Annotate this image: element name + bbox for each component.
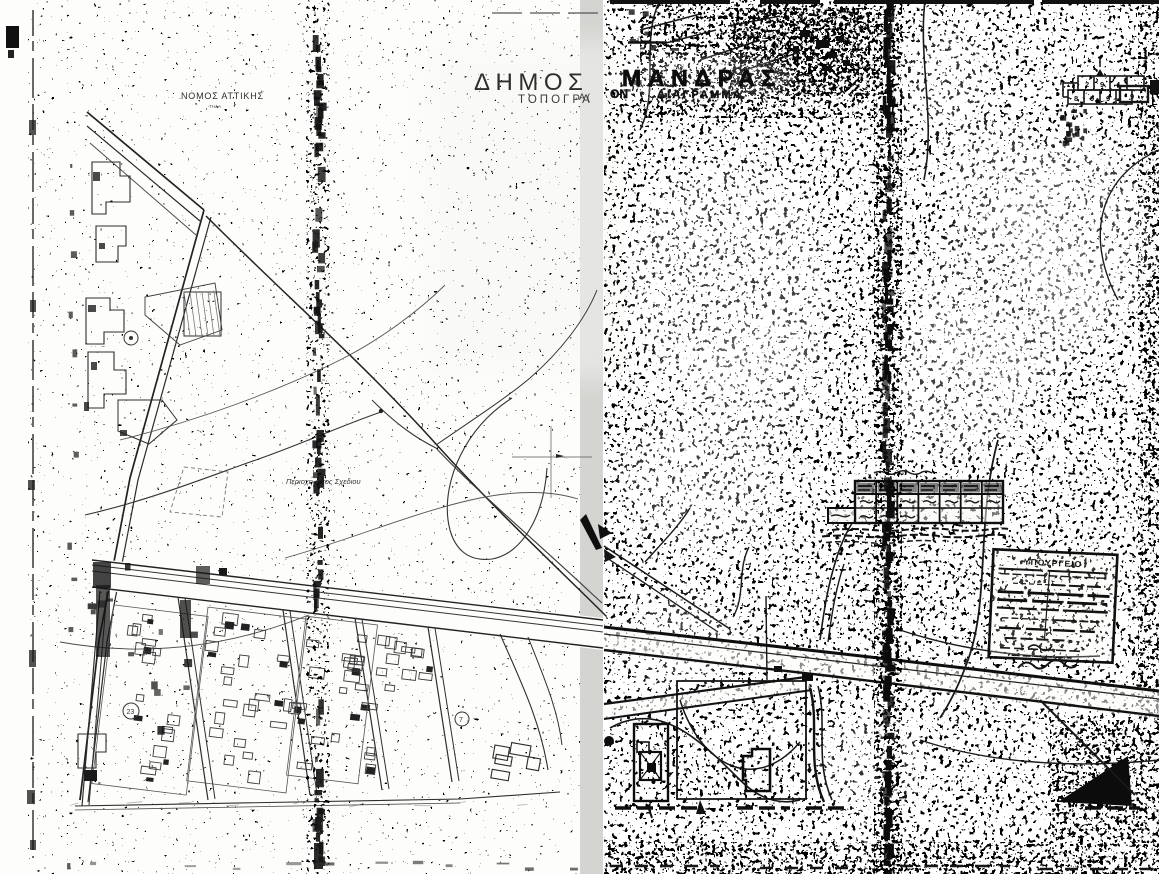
svg-text:23: 23	[127, 709, 135, 716]
svg-text:ΜΑΝΔΡΑΣ: ΜΑΝΔΡΑΣ	[622, 65, 782, 91]
svg-text:ΤΗΛΑ: ΤΗΛΑ	[209, 104, 221, 109]
svg-text:ΟΝ: ΟΝ	[610, 87, 628, 101]
svg-text:9: 9	[1090, 94, 1094, 103]
svg-text:ΔΗΜΟΣ: ΔΗΜΟΣ	[474, 69, 588, 96]
svg-text:Α (: Α (	[579, 92, 590, 102]
svg-text:9: 9	[1130, 92, 1134, 101]
svg-text:2: 2	[1085, 80, 1089, 89]
svg-text:ΝΟΜΟΣ ΑΤΤΙΚΗΣ: ΝΟΜΟΣ ΑΤΤΙΚΗΣ	[181, 91, 264, 101]
svg-text:9: 9	[1100, 80, 1104, 89]
svg-text:8: 8	[1074, 94, 1078, 103]
svg-text:ΔΙΑΓΡΑΜΜΑ: ΔΙΑΓΡΑΜΜΑ	[657, 89, 743, 101]
svg-text:9: 9	[1106, 94, 1110, 103]
svg-text:7: 7	[459, 717, 463, 724]
